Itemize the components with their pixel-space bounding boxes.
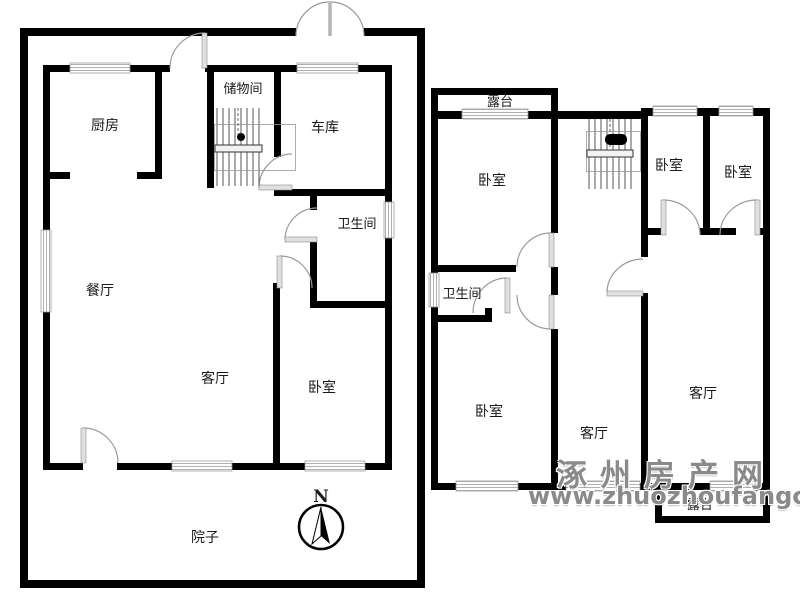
- wall-segment: [551, 88, 558, 233]
- window: [653, 106, 697, 116]
- floor2-staircase: [586, 119, 641, 189]
- wall-segment: [137, 172, 162, 179]
- room-label-dining: 餐厅: [86, 283, 114, 299]
- wall-segment: [43, 65, 50, 230]
- stair-handrail: [215, 145, 262, 152]
- room-label-storage: 储物间: [223, 82, 262, 97]
- room-label-living-mid: 客厅: [580, 425, 608, 442]
- wall-segment: [431, 483, 456, 490]
- wall-segment: [700, 228, 736, 235]
- window: [429, 273, 439, 307]
- door-arc: [517, 233, 551, 267]
- wall-segment: [20, 28, 28, 588]
- wall-segment: [431, 88, 558, 95]
- door-arc: [83, 428, 118, 463]
- room-label-kitchen: 厨房: [91, 118, 119, 134]
- door-leaf: [607, 291, 643, 296]
- window: [384, 202, 394, 238]
- floor1-staircase: [215, 108, 296, 186]
- wall-segment: [43, 172, 70, 179]
- door-leaf: [202, 33, 207, 68]
- window: [719, 106, 753, 116]
- wall-segment: [310, 301, 392, 308]
- door-leaf: [755, 200, 760, 235]
- door-leaf: [285, 237, 317, 242]
- compass-north-label: N: [313, 487, 329, 507]
- door-arc: [280, 256, 312, 288]
- wall-segment: [697, 108, 719, 116]
- wall-segment: [417, 28, 425, 588]
- wall-segment: [551, 111, 648, 119]
- door-leaf: [259, 185, 292, 190]
- door-leaf: [549, 295, 554, 329]
- window: [70, 63, 130, 73]
- stair-handrail: [587, 150, 633, 157]
- wall-segment: [117, 463, 172, 470]
- floor2-doors: [473, 200, 760, 329]
- door-leaf: [277, 256, 282, 288]
- room-label-bathroom2: 卫生间: [442, 287, 481, 302]
- wall-segment: [528, 111, 553, 119]
- wall-segment: [130, 65, 170, 72]
- wall-segment: [431, 307, 438, 490]
- floorplan-image: N: [0, 0, 800, 600]
- window: [305, 461, 365, 471]
- compass: N: [299, 487, 343, 549]
- window: [297, 63, 358, 73]
- room-label-bathroom: 卫生间: [337, 217, 376, 232]
- wall-segment: [207, 65, 214, 188]
- stair-post: [237, 133, 245, 141]
- wall-segment: [20, 28, 296, 36]
- room-label-living: 客厅: [201, 370, 229, 387]
- door-leaf: [81, 428, 86, 463]
- wall-segment: [431, 88, 438, 273]
- stair-post: [605, 134, 627, 145]
- wall-segment: [365, 463, 392, 470]
- wall-segment: [273, 283, 280, 470]
- door-arc: [170, 33, 205, 68]
- room-label-garage: 车库: [311, 119, 339, 136]
- door-arc: [607, 259, 643, 293]
- room-label-bedroom-nw: 卧室: [478, 172, 506, 189]
- room-label-yard: 院子: [191, 530, 219, 546]
- wall-segment: [43, 463, 83, 470]
- room-label-bedroom-sw: 卧室: [475, 403, 503, 420]
- wall-segment: [20, 580, 425, 588]
- door-arc: [285, 208, 317, 240]
- window: [456, 481, 518, 491]
- door-leaf: [549, 233, 554, 267]
- wall-segment: [641, 111, 648, 257]
- wall-segment: [364, 28, 425, 36]
- door-leaf: [661, 200, 666, 235]
- floorplan-drawing: N: [0, 0, 800, 600]
- door-arc: [663, 200, 700, 235]
- room-label-bedroom: 卧室: [308, 379, 336, 396]
- door-arc: [259, 154, 292, 188]
- wall-segment: [485, 308, 492, 322]
- wall-segment: [703, 116, 710, 235]
- wall-segment: [385, 238, 392, 463]
- wall-segment: [43, 312, 50, 470]
- room-label-terrace-top: 露台: [487, 95, 513, 110]
- window: [41, 230, 51, 312]
- wall-segment: [310, 240, 317, 308]
- room-label-bedroom-ne-right: 卧室: [724, 164, 752, 181]
- wall-segment: [232, 463, 305, 470]
- wall-segment: [205, 65, 297, 72]
- door-arc: [517, 295, 551, 329]
- watermark-site-url: www.zhuozhoufangchan.com: [528, 482, 800, 510]
- wall-segment: [655, 516, 770, 523]
- wall-segment: [431, 315, 492, 322]
- wall-segment: [385, 65, 392, 202]
- window: [462, 109, 528, 119]
- wall-segment: [155, 65, 162, 175]
- wall-segment: [274, 65, 281, 157]
- wall-segment: [438, 111, 462, 119]
- window: [172, 461, 232, 471]
- room-label-living-east: 客厅: [689, 385, 717, 402]
- wall-segment: [551, 267, 558, 295]
- room-label-bedroom-ne-left: 卧室: [655, 157, 683, 174]
- wall-segment: [641, 108, 653, 116]
- door-leaf: [505, 278, 510, 313]
- wall-segment: [431, 265, 516, 272]
